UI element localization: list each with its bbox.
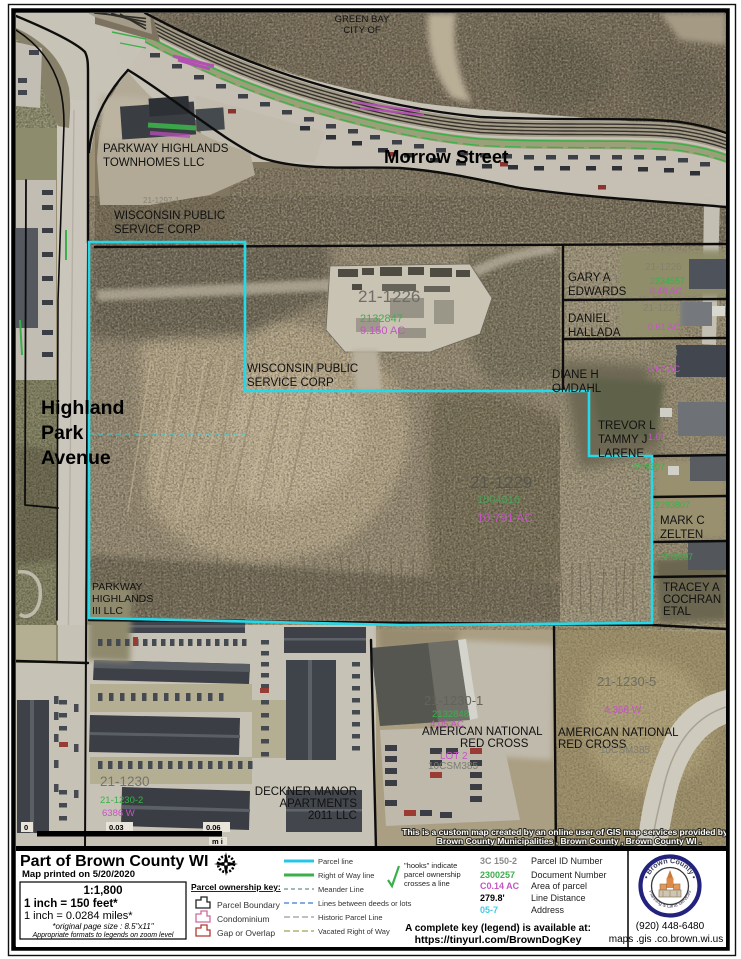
svg-text:0.61 AC: 0.61 AC xyxy=(648,322,681,332)
svg-text:Highland: Highland xyxy=(41,397,124,419)
svg-text:10CSM385: 10CSM385 xyxy=(600,745,650,756)
svg-text:2299307: 2299307 xyxy=(630,462,665,472)
svg-text:Park: Park xyxy=(41,422,83,444)
svg-text:21-1230-2: 21-1230-2 xyxy=(100,795,143,806)
svg-text:6386 W: 6386 W xyxy=(102,808,135,819)
svg-text:Gap or Overlap: Gap or Overlap xyxy=(217,928,275,938)
svg-text:Part of Brown County WI: Part of Brown County WI xyxy=(20,853,208,870)
svg-text:SERVICE CORP: SERVICE CORP xyxy=(114,224,201,236)
svg-text:Line Distance: Line Distance xyxy=(531,893,586,903)
svg-text:10.791 AC: 10.791 AC xyxy=(477,511,533,525)
svg-text:Historic Parcel Line: Historic Parcel Line xyxy=(318,913,383,922)
svg-text:C0.14 AC: C0.14 AC xyxy=(480,881,520,891)
svg-text:9.150 AC: 9.150 AC xyxy=(360,325,405,337)
svg-text:GARY A: GARY A xyxy=(568,272,611,284)
svg-text:21-1226: 21-1226 xyxy=(358,287,420,306)
svg-text:2293807: 2293807 xyxy=(658,552,693,562)
svg-text:AMERICAN NATIONAL: AMERICAN NATIONAL xyxy=(558,727,679,739)
svg-text:APARTMENTS: APARTMENTS xyxy=(279,798,357,810)
svg-text:m i: m i xyxy=(212,837,223,846)
svg-text:2132847: 2132847 xyxy=(360,313,403,325)
svg-text:0.03: 0.03 xyxy=(109,823,124,832)
svg-text:3C 150-2: 3C 150-2 xyxy=(480,856,517,866)
svg-text:HIGHLANDS: HIGHLANDS xyxy=(92,593,153,605)
svg-text:Document Number: Document Number xyxy=(531,870,607,880)
svg-text:Condominium: Condominium xyxy=(217,914,269,924)
svg-text:III LLC: III LLC xyxy=(92,605,123,617)
svg-text:MARK C: MARK C xyxy=(660,515,705,527)
svg-text:21-1230-5: 21-1230-5 xyxy=(597,674,656,689)
svg-text:2300257: 2300257 xyxy=(480,870,515,880)
svg-text:Parcel Boundary: Parcel Boundary xyxy=(217,900,281,910)
svg-text:ETAL: ETAL xyxy=(663,606,692,618)
svg-text:1.01: 1.01 xyxy=(648,432,666,442)
svg-text:Parcel ownership key:: Parcel ownership key: xyxy=(191,882,281,892)
svg-text:TAMMY J: TAMMY J xyxy=(598,434,647,446)
svg-text:OMDAHL: OMDAHL xyxy=(552,383,602,395)
svg-text:279.8': 279.8' xyxy=(480,893,505,903)
svg-text:Appropriate formats to legends: Appropriate formats to legends on zoom l… xyxy=(32,932,174,939)
svg-text:maps .gis .co.brown.wi.us: maps .gis .co.brown.wi.us xyxy=(609,934,724,945)
svg-text:crosses a line: crosses a line xyxy=(404,879,450,888)
svg-text:parcel ownership: parcel ownership xyxy=(404,870,461,879)
svg-text:21-1230-1: 21-1230-1 xyxy=(424,693,483,708)
svg-text:21-1227: 21-1227 xyxy=(643,303,680,314)
svg-text:21-1229: 21-1229 xyxy=(470,473,532,492)
svg-text:DIANE H: DIANE H xyxy=(552,369,599,381)
svg-text:Lines between deeds or lots: Lines between deeds or lots xyxy=(318,899,412,908)
svg-text:2234557: 2234557 xyxy=(650,276,685,286)
svg-text:4.366 W: 4.366 W xyxy=(604,705,642,716)
svg-text:WISCONSIN PUBLIC: WISCONSIN PUBLIC xyxy=(247,363,358,375)
svg-text:21-1226: 21-1226 xyxy=(645,262,682,273)
svg-text:1 inch = 0.0284 miles*: 1 inch = 0.0284 miles* xyxy=(24,910,133,922)
svg-text:Address: Address xyxy=(531,905,565,915)
svg-text:(920) 448-6480: (920) 448-6480 xyxy=(636,921,705,932)
svg-text:CITY OF: CITY OF xyxy=(343,25,380,36)
svg-text:AMERICAN NATIONAL: AMERICAN NATIONAL xyxy=(422,726,543,738)
svg-text:Parcel line: Parcel line xyxy=(318,857,353,866)
svg-text:WISCONSIN PUBLIC: WISCONSIN PUBLIC xyxy=(114,210,225,222)
svg-text:2011 LLC: 2011 LLC xyxy=(308,810,357,822)
svg-text:PARKWAY HIGHLANDS: PARKWAY HIGHLANDS xyxy=(103,143,229,155)
svg-text:21-1297-1: 21-1297-1 xyxy=(143,196,180,205)
svg-text:ZELTEN: ZELTEN xyxy=(660,529,703,541)
svg-text:*original page size : 8.5"x11": *original page size : 8.5"x11" xyxy=(52,922,154,931)
svg-text:2293807: 2293807 xyxy=(655,500,690,510)
svg-text:0.06: 0.06 xyxy=(206,823,221,832)
svg-text:0: 0 xyxy=(24,823,28,832)
svg-text:DANIEL: DANIEL xyxy=(568,313,610,325)
svg-text:https://tinyurl.com/BrownDogKe: https://tinyurl.com/BrownDogKey xyxy=(415,934,582,946)
svg-text:"hooks" indicate: "hooks" indicate xyxy=(404,861,457,870)
svg-text:Avenue: Avenue xyxy=(41,447,111,469)
svg-text:Morrow Street: Morrow Street xyxy=(384,146,508,167)
svg-text:Right of Way line: Right of Way line xyxy=(318,871,374,880)
svg-text:Meander Line: Meander Line xyxy=(318,885,364,894)
svg-text:Vacated Right of Way: Vacated Right of Way xyxy=(318,927,390,936)
svg-text:1504816: 1504816 xyxy=(477,494,520,506)
svg-text:HALLADA: HALLADA xyxy=(568,327,621,339)
svg-text:21-1230: 21-1230 xyxy=(100,774,150,789)
svg-text:Brown County Municipalities ,: Brown County Municipalities , Brown Coun… xyxy=(437,836,701,846)
svg-text:0.67 AC: 0.67 AC xyxy=(648,364,681,374)
svg-text:10CSM385: 10CSM385 xyxy=(428,761,478,772)
svg-text:EDWARDS: EDWARDS xyxy=(568,286,627,298)
svg-text:PARKWAY: PARKWAY xyxy=(92,581,143,593)
svg-text:DECKNER MANOR: DECKNER MANOR xyxy=(255,786,357,798)
svg-text:21-1228: 21-1228 xyxy=(641,348,678,359)
svg-text:0.46 AC: 0.46 AC xyxy=(650,286,683,296)
svg-text:LARENE: LARENE xyxy=(598,448,644,460)
svg-text:05-7: 05-7 xyxy=(480,905,498,915)
svg-text:1:1,800: 1:1,800 xyxy=(83,885,122,897)
svg-text:Map printed on 5/20/2020: Map printed on 5/20/2020 xyxy=(22,869,135,880)
svg-text:A complete key (legend) is ava: A complete key (legend) is available at: xyxy=(405,923,591,934)
svg-text:1 inch = 150 feet*: 1 inch = 150 feet* xyxy=(24,898,118,910)
svg-text:TREVOR L: TREVOR L xyxy=(598,420,656,432)
svg-text:RED CROSS: RED CROSS xyxy=(460,738,529,750)
svg-text:COCHRAN: COCHRAN xyxy=(663,594,721,606)
svg-text:TRACEY A: TRACEY A xyxy=(663,582,720,594)
svg-text:SERVICE CORP: SERVICE CORP xyxy=(247,377,334,389)
svg-text:GREEN BAY: GREEN BAY xyxy=(335,14,390,25)
svg-text:Parcel ID Number: Parcel ID Number xyxy=(531,856,603,866)
svg-text:TOWNHOMES LLC: TOWNHOMES LLC xyxy=(103,157,204,169)
svg-text:Area of parcel: Area of parcel xyxy=(531,881,587,891)
